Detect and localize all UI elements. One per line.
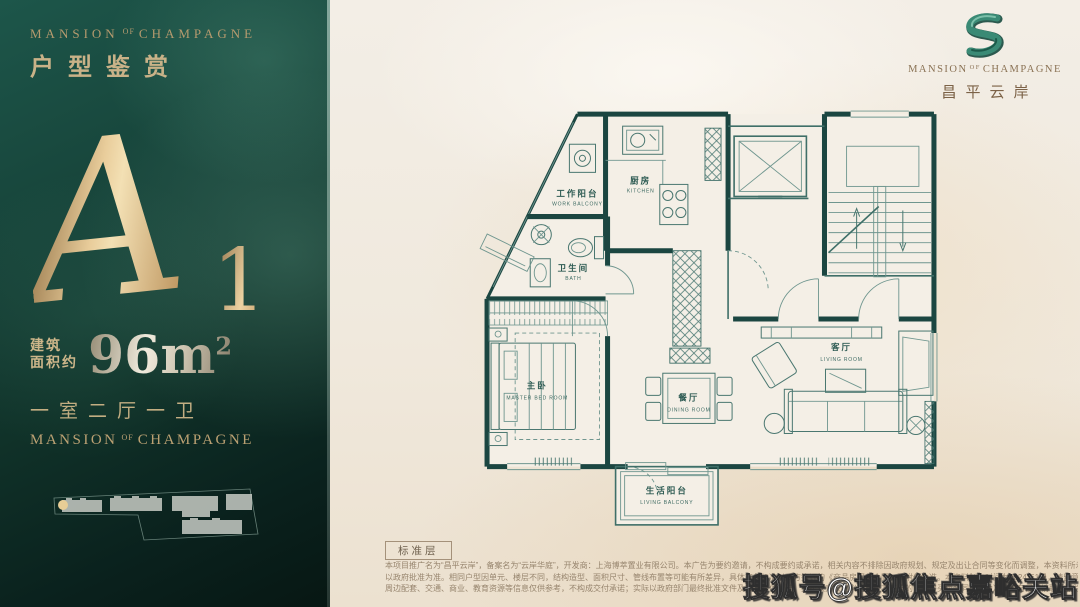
closet-column (673, 251, 701, 346)
page-title: 户型鉴赏 (30, 47, 182, 82)
canvas: MANSIONOFCHAMPAGNE 昌平云岸 (330, 0, 1080, 607)
left-panel: MANSIONOFCHAMPAGNE 户型鉴赏 A 1 建筑 面积约 96m2 … (0, 0, 330, 607)
room-label-kitchen: 厨房 KITCHEN (627, 175, 655, 194)
unit-number: 1 (212, 238, 267, 324)
svg-text:MASTER BED ROOM: MASTER BED ROOM (506, 395, 568, 401)
svg-text:餐厅: 餐厅 (677, 392, 699, 402)
site-map (32, 468, 297, 586)
area-row: 建筑 面积约 96m2 (30, 330, 232, 382)
brand-logo: MANSIONOFCHAMPAGNE 昌平云岸 (890, 10, 1080, 102)
svg-text:DINING ROOM: DINING ROOM (667, 407, 710, 413)
svg-text:生活阳台: 生活阳台 (646, 486, 688, 496)
svg-text:工作阳台: 工作阳台 (556, 188, 598, 198)
level-tag: 标准层 (385, 541, 452, 560)
fridge-cabinet (705, 128, 721, 180)
watermark: 搜狐号@搜狐焦点嘉峪关站 (743, 566, 1078, 605)
site-buildings (62, 494, 252, 534)
room-label-work-balcony: 工作阳台 WORK BALCONY (552, 188, 603, 207)
svg-text:主卧: 主卧 (527, 380, 548, 390)
poster: MANSIONOFCHAMPAGNE 户型鉴赏 A 1 建筑 面积约 96m2 … (0, 0, 1080, 607)
brand-emblem-icon (954, 10, 1016, 60)
svg-text:KITCHEN: KITCHEN (627, 188, 655, 194)
svg-text:厨房: 厨房 (630, 175, 651, 185)
layout-description: 一室二厅一卫 (30, 396, 204, 423)
brand-top-r: CHAMPAGNE (139, 26, 256, 41)
hatched-wall (925, 401, 934, 463)
floor-plan: 工作阳台 WORK BALCONY 厨房 KITCHEN 卫生间 BATH 主卧… (477, 100, 944, 542)
svg-text:LIVING ROOM: LIVING ROOM (820, 357, 862, 363)
shoe-cabinet (670, 348, 710, 363)
svg-text:卫生间: 卫生间 (558, 263, 590, 273)
unit-letter: A (15, 104, 194, 337)
svg-text:客厅: 客厅 (830, 342, 852, 352)
logo-cn: 昌平云岸 (899, 81, 1080, 102)
logo-name: MANSIONOFCHAMPAGNE (890, 64, 1080, 75)
brand-top-of: OF (123, 27, 135, 36)
svg-text:BATH: BATH (565, 276, 581, 282)
svg-text:WORK BALCONY: WORK BALCONY (552, 202, 603, 208)
brand-top-l: MANSION (30, 26, 119, 41)
area-prefix: 建筑 面积约 (30, 338, 78, 372)
svg-text:LIVING BALCONY: LIVING BALCONY (640, 500, 693, 506)
area-value: 96m2 (88, 330, 232, 382)
location-dot (58, 500, 68, 510)
brand-footer: MANSIONOFCHAMPAGNE (30, 432, 254, 449)
brand-top: MANSIONOFCHAMPAGNE (30, 26, 256, 42)
